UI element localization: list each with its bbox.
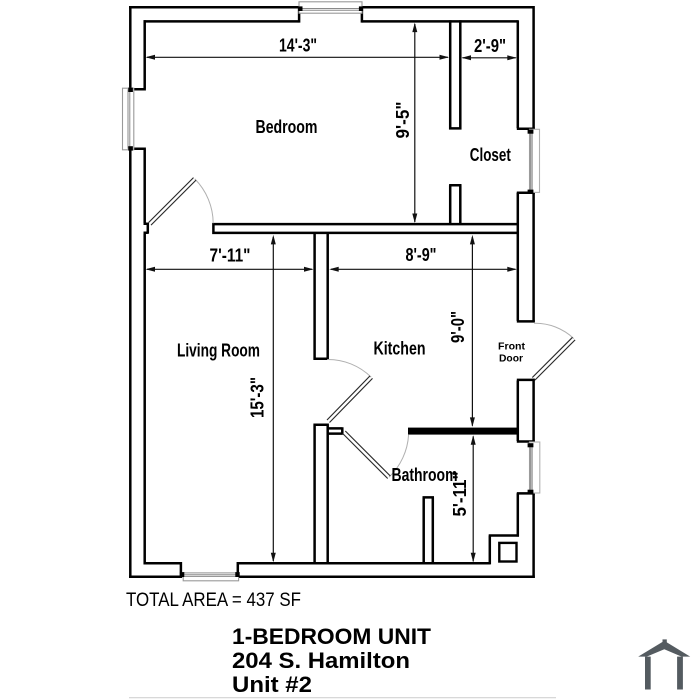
svg-text:TOTAL AREA = 437 SF: TOTAL AREA = 437 SF xyxy=(126,589,301,611)
svg-text:Bedroom: Bedroom xyxy=(256,117,318,137)
svg-text:14'-3": 14'-3" xyxy=(279,36,317,56)
svg-text:2'-9": 2'-9" xyxy=(474,36,506,56)
svg-text:Unit #2: Unit #2 xyxy=(232,672,312,697)
svg-text:204 S. Hamilton: 204 S. Hamilton xyxy=(232,648,410,673)
svg-text:7'-11": 7'-11" xyxy=(210,246,251,266)
svg-text:1-BEDROOM UNIT: 1-BEDROOM UNIT xyxy=(232,624,432,649)
svg-text:Bathroom: Bathroom xyxy=(392,465,458,485)
svg-text:Living Room: Living Room xyxy=(177,341,260,361)
svg-text:8'-9": 8'-9" xyxy=(406,245,437,265)
svg-text:Front: Front xyxy=(498,341,526,353)
svg-text:15'-3": 15'-3" xyxy=(248,377,268,418)
svg-text:9'-5": 9'-5" xyxy=(393,102,413,139)
svg-text:Closet: Closet xyxy=(470,145,511,165)
svg-text:Kitchen: Kitchen xyxy=(374,339,426,359)
svg-text:Door: Door xyxy=(499,353,523,365)
svg-text:9'-0": 9'-0" xyxy=(448,311,468,343)
